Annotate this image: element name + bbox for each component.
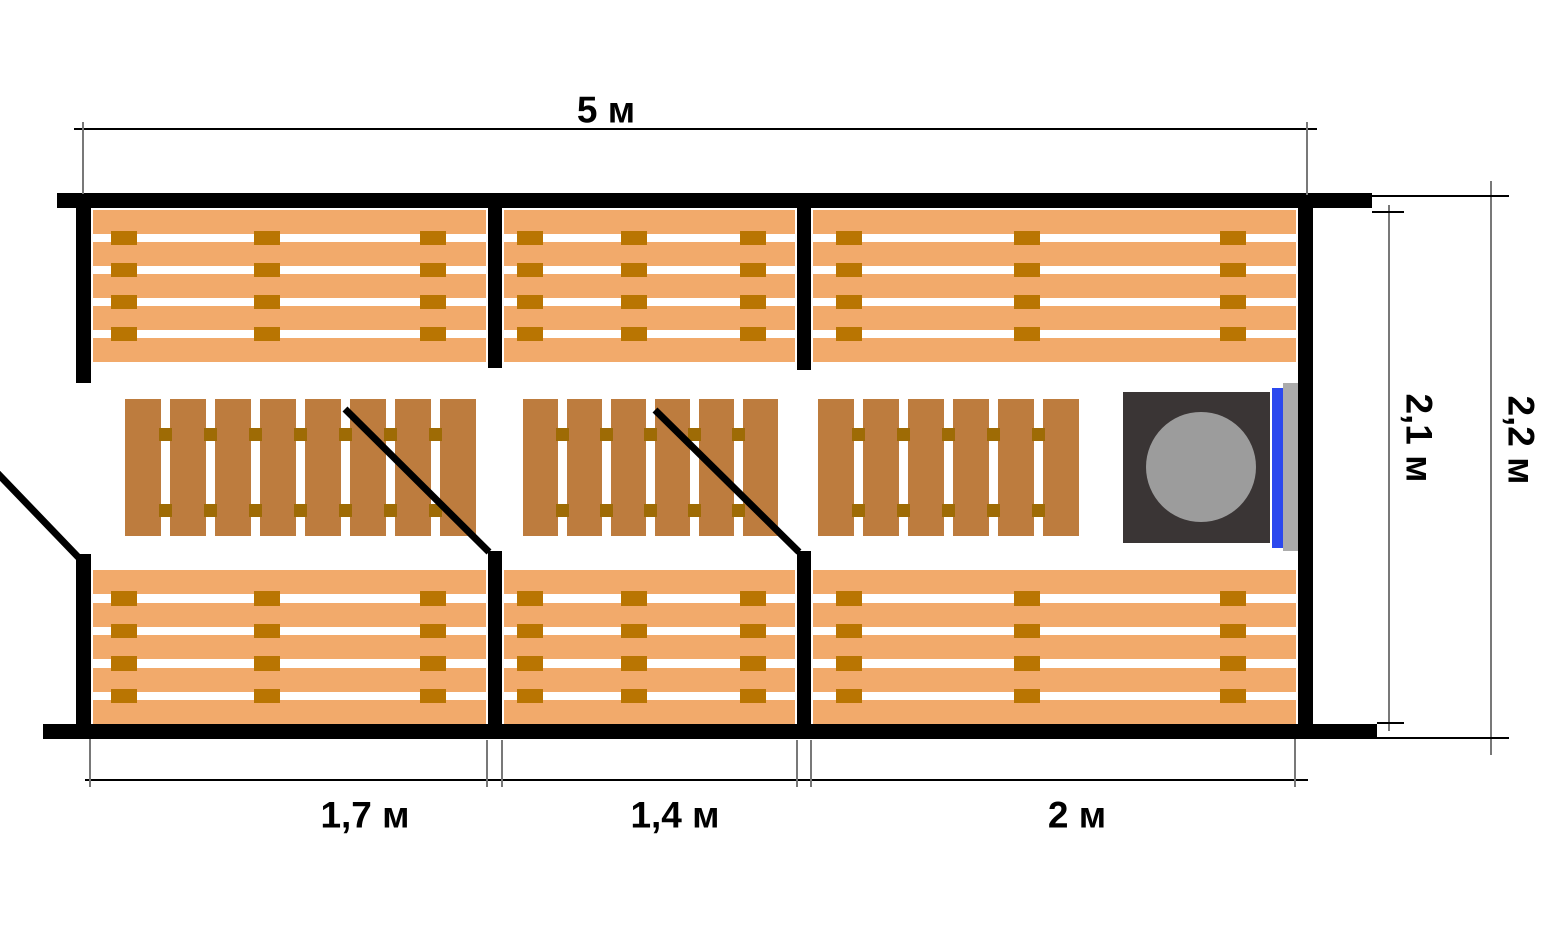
extension-partition2-left <box>796 740 798 787</box>
extension-bottom-right <box>1294 739 1296 787</box>
dimension-line-bottom-rooms <box>85 779 1308 781</box>
bench-connector <box>254 327 280 341</box>
bench-upper-room-2 <box>504 210 795 362</box>
bench-connector <box>111 656 137 671</box>
bench-connector <box>420 263 446 277</box>
wall-exterior-top <box>57 193 1372 208</box>
wall-exterior-bottom <box>43 724 1377 739</box>
bench-connector <box>1014 591 1040 606</box>
extension-outer-depth-bottom <box>1377 737 1509 739</box>
bench-connector <box>111 591 137 606</box>
duckboard-connector <box>987 428 1000 441</box>
bench-lower-room-3-plank <box>813 700 1296 724</box>
bench-connector <box>420 295 446 309</box>
duckboard-connector <box>339 428 352 441</box>
bench-connector <box>1220 295 1246 309</box>
bench-connector <box>1014 327 1040 341</box>
duckboard-room-3-slat <box>953 399 989 536</box>
duckboard-connector <box>644 428 657 441</box>
bench-connector <box>254 591 280 606</box>
wall-left-upper-segment <box>76 208 91 383</box>
duckboard-connector <box>556 428 569 441</box>
dim-label-total-width: 5 м <box>577 92 635 129</box>
bench-connector <box>254 656 280 671</box>
duckboard-connector <box>204 504 217 517</box>
extension-top-right <box>1306 122 1308 195</box>
bench-connector <box>517 327 543 341</box>
bench-connector <box>517 689 543 704</box>
bench-connector <box>1014 295 1040 309</box>
bench-connector <box>420 327 446 341</box>
duckboard-room-1 <box>125 399 476 536</box>
dimension-line-total-width <box>74 128 1317 130</box>
duckboard-room-3-slat <box>998 399 1034 536</box>
duckboard-room-1-slat <box>350 399 386 536</box>
duckboard-connector <box>294 504 307 517</box>
duckboard-connector <box>600 428 613 441</box>
bench-connector <box>111 327 137 341</box>
duckboard-connector <box>159 504 172 517</box>
duckboard-room-2-slat <box>567 399 602 536</box>
bench-connector <box>1014 624 1040 639</box>
bench-lower-room-2-plank <box>504 700 795 724</box>
duckboard-room-1-slat <box>215 399 251 536</box>
dimension-line-inner-depth <box>1388 205 1390 731</box>
duckboard-room-1-slat <box>305 399 341 536</box>
bench-connector <box>420 591 446 606</box>
bench-upper-room-3 <box>813 210 1296 362</box>
wall-left-lower-segment <box>76 554 91 724</box>
water-tank-strip <box>1272 388 1283 548</box>
bench-connector <box>1220 263 1246 277</box>
duckboard-connector <box>429 504 442 517</box>
bench-connector <box>740 656 766 671</box>
door-swing-entrance <box>0 455 79 558</box>
bench-connector <box>836 231 862 245</box>
duckboard-connector <box>339 504 352 517</box>
bench-upper-room-1-plank <box>93 338 486 362</box>
duckboard-connector <box>897 428 910 441</box>
duckboard-connector <box>159 428 172 441</box>
duckboard-connector <box>1032 504 1045 517</box>
duckboard-connector <box>429 428 442 441</box>
bench-connector <box>836 656 862 671</box>
duckboard-room-3-slat <box>818 399 854 536</box>
bench-connector <box>740 231 766 245</box>
bench-connector <box>517 656 543 671</box>
dim-label-inner-depth: 2,1 м <box>1401 393 1438 482</box>
bench-connector <box>254 231 280 245</box>
bench-connector <box>1014 231 1040 245</box>
bench-connector <box>836 327 862 341</box>
duckboard-connector <box>732 428 745 441</box>
duckboard-room-1-slat <box>395 399 431 536</box>
bench-connector <box>621 263 647 277</box>
bench-upper-room-1 <box>93 210 486 362</box>
bench-connector <box>621 656 647 671</box>
bench-connector <box>621 624 647 639</box>
duckboard-room-2-slat <box>655 399 690 536</box>
extension-inner-depth-bottom <box>1377 722 1404 724</box>
bench-connector <box>836 624 862 639</box>
bench-connector <box>420 231 446 245</box>
duckboard-connector <box>556 504 569 517</box>
duckboard-room-1-slat <box>170 399 206 536</box>
duckboard-connector <box>688 504 701 517</box>
bench-lower-room-1-plank <box>93 700 486 724</box>
partition-1-upper <box>488 208 502 368</box>
duckboard-connector <box>384 428 397 441</box>
bench-connector <box>517 263 543 277</box>
duckboard-room-3-slat <box>908 399 944 536</box>
bench-connector <box>836 263 862 277</box>
bench-connector <box>517 591 543 606</box>
bench-connector <box>740 591 766 606</box>
duckboard-connector <box>600 504 613 517</box>
duckboard-connector <box>644 504 657 517</box>
duckboard-connector <box>249 504 262 517</box>
bench-connector <box>111 295 137 309</box>
extension-partition1-right <box>501 740 503 787</box>
bench-connector <box>1014 263 1040 277</box>
dim-label-room3-width: 2 м <box>1048 797 1106 834</box>
duckboard-room-1-slat <box>125 399 161 536</box>
duckboard-connector <box>204 428 217 441</box>
duckboard-connector <box>897 504 910 517</box>
bench-connector <box>740 327 766 341</box>
bench-connector <box>111 231 137 245</box>
dimension-line-outer-depth <box>1490 181 1492 755</box>
duckboard-connector <box>852 504 865 517</box>
partition-2-lower <box>797 551 811 724</box>
bench-lower-room-2 <box>504 570 795 724</box>
duckboard-room-1-slat <box>260 399 296 536</box>
bench-connector <box>517 624 543 639</box>
duckboard-room-3 <box>818 399 1079 536</box>
bench-connector <box>254 263 280 277</box>
bench-connector <box>1014 656 1040 671</box>
duckboard-room-2-slat <box>523 399 558 536</box>
duckboard-room-3-slat <box>1043 399 1079 536</box>
bench-connector <box>1014 689 1040 704</box>
bench-connector <box>420 689 446 704</box>
duckboard-connector <box>249 428 262 441</box>
stove-heater-circle <box>1146 412 1256 522</box>
bench-connector <box>1220 624 1246 639</box>
bench-connector <box>1220 656 1246 671</box>
bench-connector <box>111 263 137 277</box>
wall-exterior-right <box>1298 208 1313 724</box>
dim-label-outer-depth: 2,2 м <box>1503 395 1540 484</box>
extension-top-left <box>82 122 84 194</box>
duckboard-connector <box>732 504 745 517</box>
duckboard-room-3-slat <box>863 399 899 536</box>
bench-lower-room-3 <box>813 570 1296 724</box>
duckboard-connector <box>852 428 865 441</box>
duckboard-room-2-slat <box>699 399 734 536</box>
duckboard-connector <box>987 504 1000 517</box>
bench-upper-room-3-plank <box>813 338 1296 362</box>
duckboard-room-2-slat <box>743 399 778 536</box>
duckboard-room-2-slat <box>611 399 646 536</box>
duckboard-connector <box>942 504 955 517</box>
bench-connector <box>254 624 280 639</box>
masonry-screen <box>1283 383 1298 551</box>
bench-connector <box>740 624 766 639</box>
extension-bottom-left <box>89 739 91 787</box>
bench-connector <box>254 295 280 309</box>
extension-outer-depth-top <box>1372 195 1509 197</box>
bench-upper-room-2-plank <box>504 338 795 362</box>
bench-connector <box>740 689 766 704</box>
duckboard-connector <box>384 504 397 517</box>
extension-partition2-right <box>810 740 812 787</box>
bench-connector <box>1220 591 1246 606</box>
floor-plan-canvas: 5 м 1,7 м 1,4 м 2 м 2,1 м 2,2 м <box>0 0 1546 928</box>
bench-connector <box>621 689 647 704</box>
bench-connector <box>420 656 446 671</box>
dim-label-room1-width: 1,7 м <box>320 797 409 834</box>
extension-inner-depth-top <box>1372 211 1404 213</box>
duckboard-room-2 <box>523 399 778 536</box>
bench-lower-room-1 <box>93 570 486 724</box>
duckboard-connector <box>1032 428 1045 441</box>
bench-connector <box>517 295 543 309</box>
partition-1-lower <box>488 551 502 724</box>
bench-connector <box>1220 689 1246 704</box>
bench-connector <box>111 624 137 639</box>
bench-connector <box>1220 231 1246 245</box>
bench-connector <box>1220 327 1246 341</box>
bench-connector <box>517 231 543 245</box>
partition-2-upper <box>797 208 811 370</box>
bench-connector <box>621 231 647 245</box>
bench-connector <box>836 689 862 704</box>
bench-connector <box>420 624 446 639</box>
bench-connector <box>621 591 647 606</box>
extension-partition1-left <box>486 740 488 787</box>
bench-connector <box>740 263 766 277</box>
dim-label-room2-width: 1,4 м <box>630 797 719 834</box>
bench-connector <box>621 327 647 341</box>
duckboard-room-1-slat <box>440 399 476 536</box>
duckboard-connector <box>294 428 307 441</box>
duckboard-connector <box>688 428 701 441</box>
bench-connector <box>621 295 647 309</box>
bench-connector <box>836 295 862 309</box>
bench-connector <box>740 295 766 309</box>
duckboard-connector <box>942 428 955 441</box>
bench-connector <box>111 689 137 704</box>
bench-connector <box>836 591 862 606</box>
bench-connector <box>254 689 280 704</box>
